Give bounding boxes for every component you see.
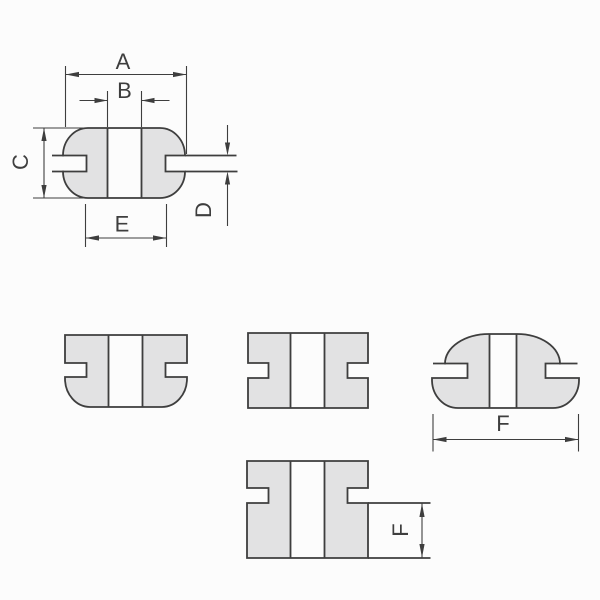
dimension-f-height: F (388, 504, 425, 558)
center-hole (109, 336, 141, 406)
main-cross-section (52, 128, 238, 198)
panel-sheet-lines (185, 156, 238, 172)
arrowhead-top (41, 128, 46, 141)
arrowhead-right (173, 72, 187, 77)
arrowhead-left (66, 72, 80, 77)
dimension-label-c: C (8, 154, 33, 170)
arrowhead-bottom (41, 185, 46, 198)
dimension-label-a: A (116, 49, 131, 74)
dimension-e: E (86, 204, 167, 247)
arrowhead-up (419, 504, 424, 518)
dimension-label-b: B (117, 78, 132, 103)
arrowhead-up (225, 172, 230, 185)
arrowhead-right (142, 98, 155, 103)
dimension-label-e: E (115, 212, 130, 237)
left-groove-lip-lines (52, 156, 64, 172)
dimension-label-d: D (191, 202, 216, 218)
variant-tall-square-profile (247, 461, 431, 558)
variant-flat-top-round-bottom (65, 335, 187, 407)
arrowhead-right (565, 437, 579, 442)
grommet-dimension-diagram: A B C D E (0, 0, 600, 600)
center-hole (108, 129, 140, 197)
dimension-b: B (80, 78, 170, 127)
center-hole (490, 335, 515, 407)
center-hole (291, 462, 323, 557)
dimension-f-width: F (433, 411, 579, 452)
dimension-d: D (191, 125, 230, 226)
variant-domed-top (432, 334, 579, 408)
drawing-canvas: A B C D E (0, 0, 600, 600)
variant-square-profile (248, 333, 368, 408)
arrowhead-left (95, 98, 108, 103)
arrowhead-right (153, 235, 167, 240)
center-hole (291, 334, 323, 407)
arrowhead-left (86, 235, 100, 240)
dimension-label-f-width: F (496, 411, 509, 436)
dimension-label-f-height: F (388, 523, 413, 536)
arrowhead-down (225, 143, 230, 156)
arrowhead-left (433, 437, 447, 442)
arrowhead-down (419, 544, 424, 558)
